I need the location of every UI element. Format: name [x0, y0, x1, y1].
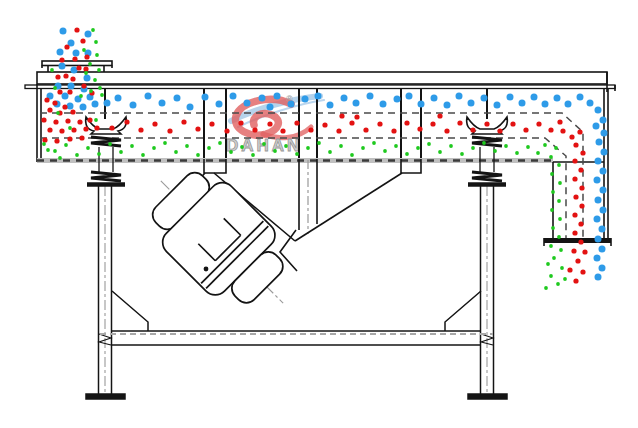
coil-spring-lower	[472, 172, 502, 181]
particle	[202, 94, 209, 101]
particle	[98, 86, 102, 90]
particle	[579, 203, 584, 208]
particle	[71, 127, 76, 132]
particle	[531, 94, 538, 101]
particle	[322, 122, 327, 127]
particle	[391, 128, 396, 133]
particle	[115, 95, 122, 102]
particle	[544, 286, 548, 290]
support-leg-left	[86, 186, 125, 399]
particle	[224, 128, 229, 133]
particle	[47, 107, 52, 112]
particle	[580, 150, 585, 155]
particle	[294, 120, 299, 125]
particle	[599, 265, 606, 272]
particle	[367, 93, 374, 100]
linear-vibrating-screen-diagram: DAHAN ®	[0, 0, 638, 428]
particle	[104, 100, 111, 107]
particle	[75, 153, 79, 157]
bottom-plate	[37, 158, 553, 163]
particle	[572, 158, 577, 163]
particle	[84, 54, 89, 59]
particle	[416, 146, 420, 150]
particle	[93, 78, 97, 82]
particle	[327, 102, 334, 109]
particle	[594, 255, 601, 262]
particle	[600, 117, 607, 124]
particle	[108, 142, 112, 146]
particle	[601, 130, 608, 137]
particle	[54, 138, 59, 143]
particle	[536, 121, 541, 126]
particle	[482, 141, 486, 145]
particle	[493, 149, 497, 153]
particle	[587, 100, 594, 107]
coil-spring-upper	[91, 137, 121, 146]
particle	[481, 95, 488, 102]
particle	[551, 190, 555, 194]
particle	[306, 146, 310, 150]
particle	[336, 128, 341, 133]
particle	[523, 127, 528, 132]
particle	[100, 93, 104, 97]
top-cover	[37, 72, 607, 84]
particle	[73, 50, 80, 57]
particle	[70, 76, 75, 81]
particle	[572, 176, 577, 181]
particle	[94, 125, 99, 130]
particle	[187, 104, 194, 111]
particle	[339, 144, 343, 148]
particle	[79, 135, 84, 140]
particle	[119, 150, 123, 154]
particle	[557, 235, 561, 239]
particle	[515, 151, 519, 155]
particle	[504, 144, 508, 148]
particle	[68, 126, 72, 130]
particle	[339, 113, 344, 118]
particle	[380, 101, 387, 108]
particle	[267, 104, 274, 111]
particle	[549, 155, 553, 159]
particle	[579, 185, 584, 190]
particle	[62, 93, 69, 100]
particle	[67, 103, 74, 110]
particle	[317, 141, 321, 145]
particle	[95, 53, 99, 57]
particle	[596, 139, 603, 146]
particle	[50, 68, 54, 72]
coil-spring-lower	[91, 172, 121, 181]
particle	[595, 274, 602, 281]
particle	[53, 149, 57, 153]
particle	[196, 153, 200, 157]
particle	[58, 156, 62, 160]
particle	[593, 123, 600, 130]
particle	[557, 119, 562, 124]
particle	[582, 249, 587, 254]
particle	[92, 101, 99, 108]
support-frame	[86, 186, 507, 399]
particle	[44, 97, 49, 102]
particle	[404, 120, 409, 125]
mount-strut-right	[295, 173, 402, 241]
particle	[174, 150, 178, 154]
particle	[350, 153, 354, 157]
particle	[94, 40, 98, 44]
particle	[295, 152, 299, 156]
particle	[284, 144, 288, 148]
particle	[595, 236, 602, 243]
particle	[558, 217, 562, 221]
coil-spring-upper	[472, 137, 502, 146]
particle	[548, 127, 553, 132]
particle	[580, 269, 585, 274]
particle	[218, 141, 222, 145]
particle	[167, 128, 172, 133]
cross-beam	[100, 331, 493, 345]
particle	[67, 136, 72, 141]
particle	[109, 125, 114, 130]
particle	[431, 95, 438, 102]
particle	[559, 248, 563, 252]
particle	[417, 126, 422, 131]
particle	[229, 150, 233, 154]
particle	[578, 167, 583, 172]
particle	[280, 128, 285, 133]
particle	[427, 142, 431, 146]
particle	[97, 68, 101, 72]
particle	[549, 274, 553, 278]
particle	[63, 73, 68, 78]
particle	[563, 277, 567, 281]
particle	[554, 95, 561, 102]
particle	[57, 89, 62, 94]
particle	[575, 258, 580, 263]
particle	[573, 194, 578, 199]
particle	[543, 143, 547, 147]
particle	[42, 137, 47, 142]
particle	[572, 230, 577, 235]
particle	[554, 146, 558, 150]
particle	[394, 96, 401, 103]
particle	[552, 256, 556, 260]
particle	[594, 216, 601, 223]
particles-medium	[41, 27, 587, 283]
particle	[124, 119, 129, 124]
particle	[549, 244, 553, 248]
particle	[244, 100, 251, 107]
particle	[595, 158, 602, 165]
particle	[567, 267, 572, 272]
particle	[557, 199, 561, 203]
particle	[130, 144, 134, 148]
particle	[83, 126, 88, 131]
particle	[507, 94, 514, 101]
particle	[394, 144, 398, 148]
particle	[41, 117, 46, 122]
particle	[406, 93, 413, 100]
particle	[259, 95, 266, 102]
particle	[349, 120, 354, 125]
spring-assembly-right	[467, 117, 508, 185]
particle	[288, 101, 295, 108]
particle	[60, 28, 67, 35]
particle	[572, 212, 577, 217]
particle	[83, 66, 88, 71]
particle	[405, 152, 409, 156]
particle	[460, 152, 464, 156]
particle	[510, 121, 515, 126]
particle	[251, 153, 255, 157]
particle	[67, 89, 72, 94]
particle	[558, 181, 562, 185]
foot-plate-left	[86, 394, 125, 399]
particle	[59, 63, 66, 70]
particle	[88, 62, 92, 66]
particle	[550, 172, 554, 176]
particle	[354, 114, 359, 119]
particle	[328, 150, 332, 154]
particle	[546, 262, 550, 266]
particle	[77, 119, 82, 124]
particle	[471, 146, 475, 150]
particle	[87, 117, 92, 122]
particle	[341, 95, 348, 102]
particle	[599, 246, 606, 253]
particle	[565, 101, 572, 108]
particle	[80, 38, 85, 43]
particle	[82, 48, 86, 52]
particle	[383, 149, 387, 153]
particle	[267, 121, 272, 126]
particle	[230, 93, 237, 100]
particle	[418, 101, 425, 108]
particle	[308, 127, 313, 132]
particle	[595, 197, 602, 204]
motor-bolt	[204, 267, 209, 272]
particle	[64, 44, 69, 49]
particle	[240, 145, 244, 149]
particle	[438, 150, 442, 154]
particle	[302, 96, 309, 103]
diagram-canvas: DAHAN ®	[0, 0, 638, 428]
particle	[59, 128, 64, 133]
particle	[599, 226, 606, 233]
particle	[519, 100, 526, 107]
particle	[62, 104, 67, 109]
particle	[47, 127, 52, 132]
particle	[141, 153, 145, 157]
particle	[185, 144, 189, 148]
particle	[571, 248, 576, 253]
particle	[81, 83, 86, 88]
side-rail	[25, 85, 615, 89]
particle	[207, 146, 211, 150]
particle	[430, 121, 435, 126]
particle	[252, 127, 257, 132]
particle	[437, 113, 442, 118]
particle	[595, 107, 602, 114]
gusset-braces	[112, 291, 481, 331]
particle	[97, 152, 101, 156]
particle	[444, 102, 451, 109]
particle	[578, 221, 583, 226]
particle	[80, 104, 87, 111]
particle	[494, 102, 501, 109]
particle	[470, 127, 475, 132]
particle	[46, 148, 50, 152]
particle	[86, 146, 90, 150]
particle	[573, 278, 578, 283]
particle	[181, 119, 186, 124]
particle	[85, 31, 92, 38]
particle	[64, 143, 68, 147]
particle	[457, 120, 462, 125]
particle	[56, 111, 60, 115]
particle	[456, 93, 463, 100]
particle	[130, 102, 137, 109]
particle	[76, 65, 81, 70]
particle	[84, 71, 88, 75]
particle	[152, 146, 156, 150]
particle	[594, 177, 601, 184]
particle	[216, 101, 223, 108]
particle	[601, 149, 608, 156]
particle	[449, 144, 453, 148]
particle	[89, 89, 93, 93]
support-leg-right	[468, 186, 507, 399]
particle	[159, 100, 166, 107]
particle	[536, 151, 540, 155]
particle	[70, 109, 75, 114]
particle	[57, 49, 64, 56]
foot-plate-right	[468, 394, 507, 399]
particle	[59, 57, 64, 62]
particle	[53, 119, 58, 124]
particle	[262, 142, 266, 146]
particle	[152, 121, 157, 126]
particle	[145, 93, 152, 100]
particle	[273, 149, 277, 153]
particle	[84, 75, 91, 82]
particles-large	[47, 28, 608, 281]
particle	[497, 128, 502, 133]
particle	[163, 141, 167, 145]
particle	[361, 146, 365, 150]
particle	[600, 168, 607, 175]
particle	[195, 126, 200, 131]
particle	[542, 101, 549, 108]
particle	[577, 94, 584, 101]
particle	[551, 226, 555, 230]
particle	[52, 100, 57, 105]
particle	[91, 28, 95, 32]
particle	[556, 282, 560, 286]
particle	[138, 127, 143, 132]
particle	[600, 187, 607, 194]
particle	[94, 118, 98, 122]
particle	[79, 94, 83, 98]
particle	[238, 120, 243, 125]
particle	[377, 121, 382, 126]
particle	[526, 145, 530, 149]
particle	[569, 134, 574, 139]
particle	[74, 27, 79, 32]
particle	[560, 128, 565, 133]
particle	[363, 127, 368, 132]
particle	[600, 207, 607, 214]
particle	[72, 56, 77, 61]
particle	[55, 74, 60, 79]
particle	[578, 239, 583, 244]
particle	[353, 100, 360, 107]
particle	[560, 266, 564, 270]
particle	[65, 118, 70, 123]
particle	[174, 95, 181, 102]
particle	[577, 129, 582, 134]
particle	[68, 83, 75, 90]
particle	[209, 121, 214, 126]
particle	[372, 141, 376, 145]
particle	[444, 128, 449, 133]
particle	[315, 93, 322, 100]
particle	[42, 142, 46, 146]
particle	[274, 93, 281, 100]
particle	[468, 100, 475, 107]
particle	[573, 142, 578, 147]
particle	[550, 208, 554, 212]
particle	[484, 121, 489, 126]
particle	[557, 163, 561, 167]
particle	[53, 86, 57, 90]
